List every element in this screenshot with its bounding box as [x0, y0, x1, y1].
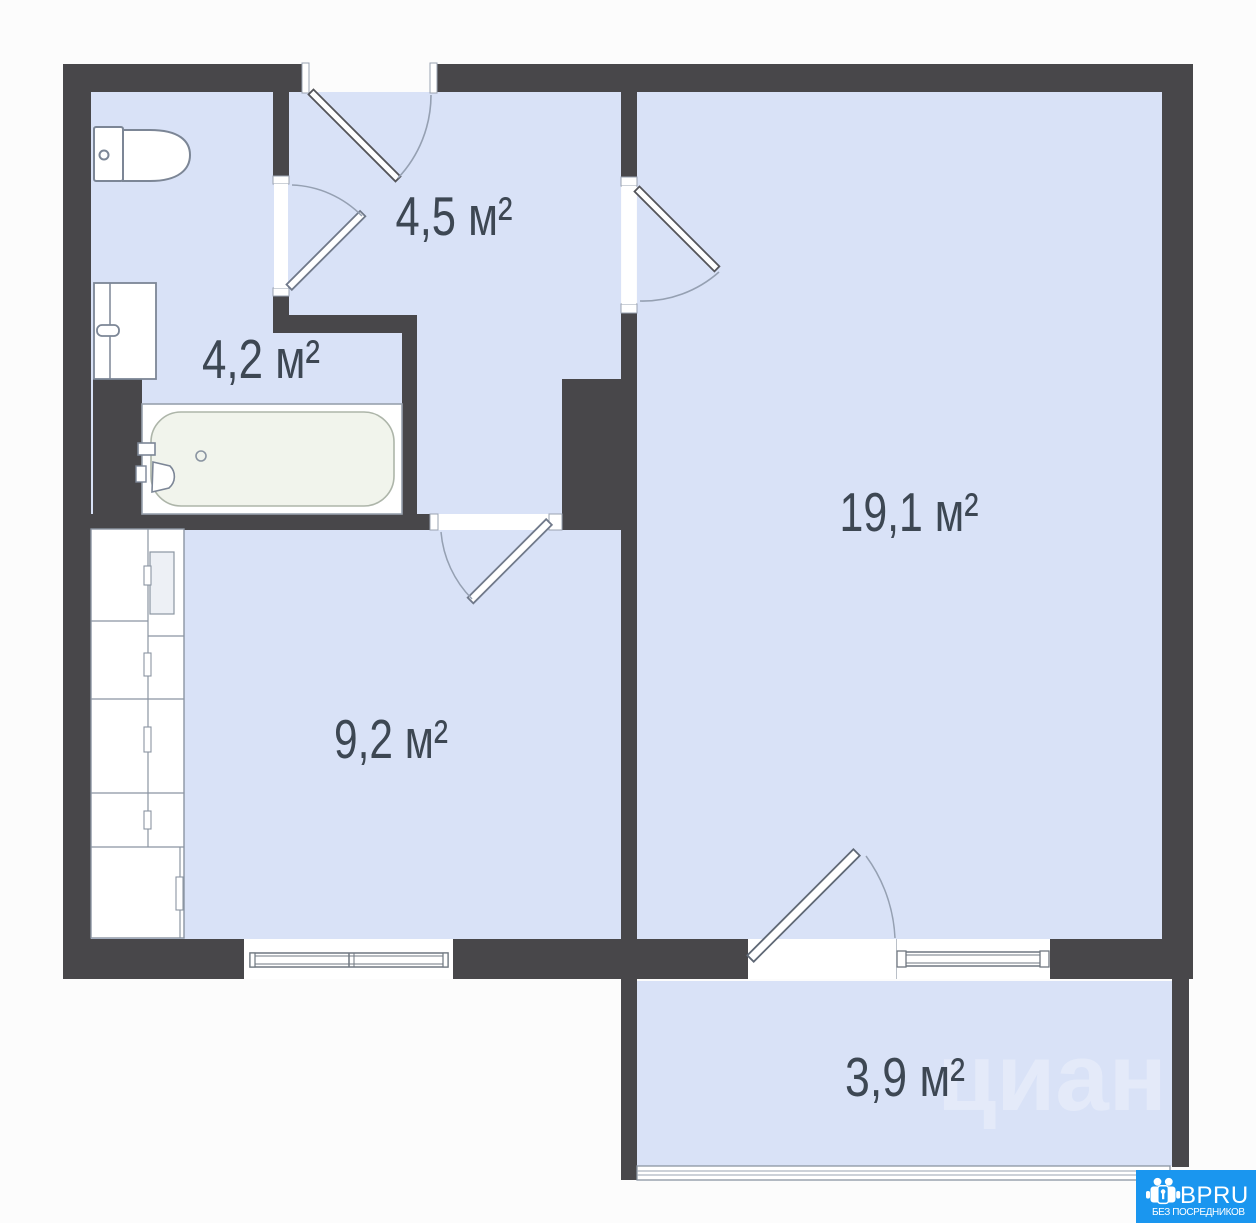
svg-text:циан: циан [937, 1024, 1166, 1131]
svg-text:9,2 м²: 9,2 м² [334, 708, 448, 770]
svg-text:BPRU: BPRU [1180, 1182, 1249, 1209]
svg-text:4,2 м²: 4,2 м² [202, 328, 320, 390]
svg-text:3,9 м²: 3,9 м² [845, 1046, 965, 1108]
svg-text:4,5 м²: 4,5 м² [396, 185, 513, 247]
svg-text:БЕЗ ПОСРЕДНИКОВ: БЕЗ ПОСРЕДНИКОВ [1152, 1207, 1245, 1218]
svg-text:19,1 м²: 19,1 м² [840, 481, 979, 543]
